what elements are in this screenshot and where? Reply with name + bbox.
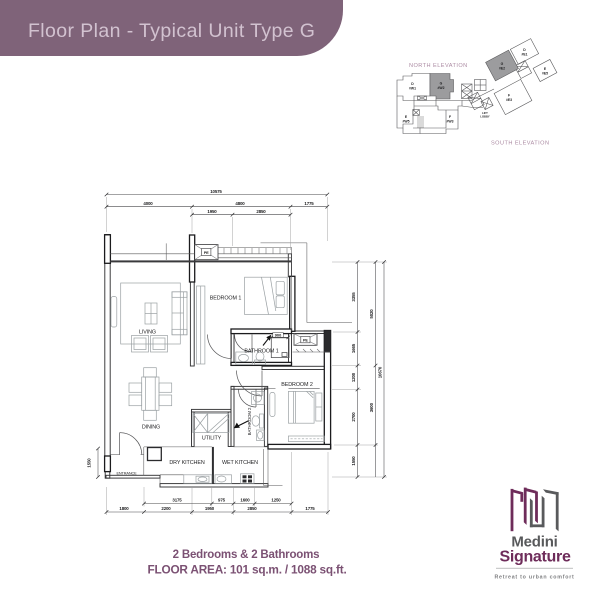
svg-text:5020: 5020 xyxy=(369,309,374,319)
svg-text:3175: 3175 xyxy=(172,498,182,503)
svg-text:SOUTH ELEVATION: SOUTH ELEVATION xyxy=(491,140,549,146)
svg-text:BEDROOM 2: BEDROOM 2 xyxy=(281,382,313,388)
svg-text:WET KITCHEN: WET KITCHEN xyxy=(222,460,258,466)
svg-text:2200: 2200 xyxy=(161,506,171,511)
svg-text:1800: 1800 xyxy=(119,506,129,511)
svg-text:1775: 1775 xyxy=(305,506,315,511)
svg-text:BATHROOM 1: BATHROOM 1 xyxy=(244,349,278,355)
svg-text:DINING: DINING xyxy=(142,425,160,431)
svg-text:UTILITY: UTILITY xyxy=(202,436,222,442)
svg-text:BEDROOM 1: BEDROOM 1 xyxy=(210,296,242,302)
svg-text:1600: 1600 xyxy=(240,498,250,503)
svg-text:BATHROOM 2: BATHROOM 2 xyxy=(247,407,252,435)
svg-text:10575: 10575 xyxy=(210,189,222,194)
svg-text:1250: 1250 xyxy=(271,498,281,503)
svg-text:#W2: #W2 xyxy=(438,86,445,90)
svg-text:2 Bedrooms & 2 Bathrooms: 2 Bedrooms & 2 Bathrooms xyxy=(173,549,320,561)
svg-text:10670: 10670 xyxy=(377,366,382,378)
svg-text:LOBBY: LOBBY xyxy=(480,114,490,118)
svg-text:1550: 1550 xyxy=(351,456,356,466)
svg-text:LIFT: LIFT xyxy=(482,111,488,115)
svg-text:F: F xyxy=(449,115,451,119)
svg-text:2850: 2850 xyxy=(247,506,257,511)
svg-text:2850: 2850 xyxy=(256,209,266,214)
svg-text:PE: PE xyxy=(303,339,308,343)
svg-text:1550: 1550 xyxy=(87,458,92,468)
svg-text:F: F xyxy=(508,94,510,98)
svg-text:G: G xyxy=(440,82,443,86)
svg-text:#E5: #E5 xyxy=(542,72,548,76)
svg-text:3355: 3355 xyxy=(351,292,356,302)
svg-text:2700: 2700 xyxy=(351,412,356,422)
svg-text:1950: 1950 xyxy=(207,209,217,214)
svg-text:Retreat to urban comfort: Retreat to urban comfort xyxy=(494,574,574,580)
svg-text:E: E xyxy=(405,115,408,119)
svg-text:1665: 1665 xyxy=(351,343,356,353)
svg-text:4800: 4800 xyxy=(235,201,245,206)
svg-text:D: D xyxy=(411,82,414,86)
svg-text:#E1: #E1 xyxy=(521,53,527,57)
svg-text:4000: 4000 xyxy=(143,201,153,206)
svg-text:1775: 1775 xyxy=(304,201,314,206)
svg-text:900: 900 xyxy=(275,333,282,338)
svg-text:#E2: #E2 xyxy=(499,67,505,71)
svg-text:1200: 1200 xyxy=(351,372,356,382)
svg-text:FLOOR AREA: 101 sq.m. / 1088 s: FLOOR AREA: 101 sq.m. / 1088 sq.ft. xyxy=(147,563,346,577)
svg-text:G: G xyxy=(501,62,504,66)
svg-text:#E3: #E3 xyxy=(506,98,512,102)
svg-text:PE: PE xyxy=(204,251,209,255)
svg-text:#W1: #W1 xyxy=(409,87,416,91)
svg-text:1950: 1950 xyxy=(205,506,215,511)
svg-text:D: D xyxy=(523,48,526,52)
svg-text:ENTRANCE: ENTRANCE xyxy=(116,471,137,475)
svg-text:#W3: #W3 xyxy=(447,120,454,124)
svg-text:Signature: Signature xyxy=(499,549,570,566)
svg-text:#W5: #W5 xyxy=(403,120,410,124)
svg-text:E: E xyxy=(544,67,547,71)
svg-text:3600: 3600 xyxy=(369,402,374,412)
svg-text:LIVING: LIVING xyxy=(139,330,156,336)
svg-text:NORTH ELEVATION: NORTH ELEVATION xyxy=(409,63,468,69)
svg-text:975: 975 xyxy=(218,498,226,503)
svg-text:Floor Plan - Typical Unit Type: Floor Plan - Typical Unit Type G xyxy=(28,20,315,42)
svg-text:DRY KITCHEN: DRY KITCHEN xyxy=(169,460,204,466)
